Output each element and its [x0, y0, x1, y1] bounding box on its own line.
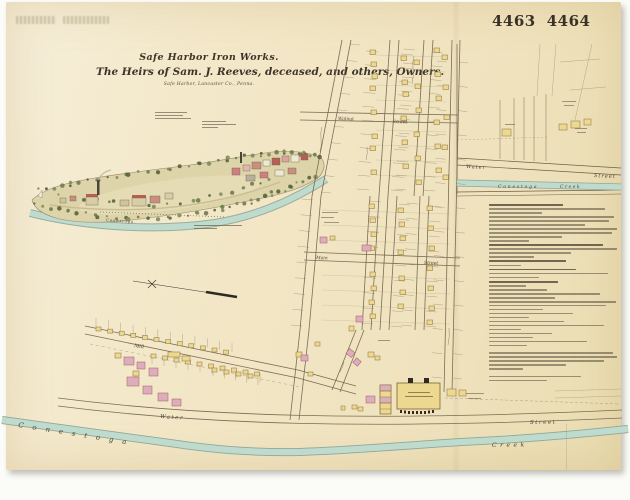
building [447, 389, 456, 396]
building-brick [172, 399, 181, 406]
pseudo-text-line [489, 289, 547, 290]
building [372, 74, 378, 79]
building [96, 327, 101, 331]
tree [168, 168, 171, 171]
parcel-line [361, 134, 373, 135]
building [416, 180, 422, 185]
building [502, 129, 511, 136]
building [370, 86, 376, 91]
pseudo-text-line [489, 248, 617, 249]
parcel-line [456, 208, 465, 209]
building [166, 340, 171, 344]
micro-text [466, 393, 484, 394]
micro-text [575, 128, 587, 129]
parcel-line [400, 68, 412, 69]
building [330, 236, 335, 240]
building-brick [137, 362, 145, 369]
building [131, 333, 136, 337]
building [108, 329, 113, 333]
tree [57, 193, 59, 195]
tree [57, 206, 62, 211]
building [434, 48, 440, 53]
parcel-line [456, 232, 465, 233]
building [209, 364, 214, 368]
building [427, 266, 433, 271]
building [415, 156, 421, 161]
building [174, 358, 179, 362]
building [401, 56, 407, 61]
building [414, 132, 420, 137]
pseudo-text-line [489, 265, 521, 266]
building [315, 342, 320, 346]
tree [198, 161, 202, 165]
tree [41, 205, 44, 208]
building [197, 362, 202, 366]
parcel-line [359, 161, 371, 162]
tree [147, 204, 150, 207]
tree [217, 159, 220, 162]
building [212, 368, 217, 372]
pseudo-text-line [489, 281, 558, 283]
tree [208, 194, 211, 197]
tree [242, 202, 246, 206]
tree [282, 149, 286, 153]
inset-label-street: Street [594, 173, 616, 180]
parcel-line [395, 265, 406, 266]
parcel-line [454, 305, 463, 306]
street-label-water: Water [160, 414, 184, 422]
parcel-line [428, 251, 439, 252]
building [232, 368, 237, 372]
block-line [322, 275, 450, 279]
building [255, 372, 260, 376]
pseudo-text-line [489, 352, 613, 353]
tree [152, 205, 156, 209]
building [435, 72, 441, 77]
mill-window-ticks [400, 410, 434, 414]
pseudo-text-line [489, 297, 555, 298]
building [400, 290, 406, 295]
building-brick [366, 396, 375, 403]
street-label-mill: Mill [133, 343, 145, 351]
tree [270, 190, 274, 194]
building [368, 352, 374, 357]
tree [243, 154, 246, 157]
parcel-line [426, 311, 437, 312]
tree [166, 202, 168, 204]
tree [220, 205, 224, 209]
tree [313, 153, 317, 157]
parcel-line [405, 249, 416, 250]
parcel-line [321, 192, 331, 193]
parcel-line [403, 279, 414, 280]
building-brick [301, 355, 308, 361]
pseudo-text-line [489, 325, 604, 326]
tree [251, 154, 255, 158]
building [427, 320, 433, 325]
parcel-line [350, 44, 360, 45]
tree [235, 157, 237, 159]
building [402, 80, 408, 85]
pseudo-text-line [489, 269, 576, 271]
parcel-line [434, 231, 444, 232]
parcel-line [404, 49, 415, 50]
pseudo-text-line [489, 333, 552, 334]
building-brick [124, 357, 134, 365]
pseudo-text-line [489, 380, 547, 381]
block-line [376, 175, 446, 177]
building [584, 119, 591, 125]
building [415, 84, 421, 89]
building [370, 314, 376, 319]
pseudo-text-line [489, 368, 523, 369]
parcel-line [324, 176, 334, 177]
factory-chimney [97, 180, 100, 195]
building [399, 276, 405, 281]
pseudo-text-line [489, 321, 564, 322]
building [459, 390, 466, 396]
birds-eye-illustration: Conestoga [30, 149, 326, 227]
parcel-line [397, 235, 408, 236]
building [436, 96, 442, 101]
building [142, 335, 147, 339]
street-label-walnut-street: Street [393, 119, 407, 125]
building [151, 354, 156, 358]
parcel-line [432, 353, 442, 354]
building [220, 366, 225, 370]
parcel-line [459, 86, 468, 87]
building [375, 356, 380, 360]
reference-legend [489, 204, 621, 384]
tree [146, 216, 150, 220]
building [559, 124, 567, 130]
inset-label-creek: Creek [560, 184, 581, 190]
tree [256, 198, 260, 202]
inset-label-conestoga: Conestoga [498, 184, 538, 190]
parcel-line [427, 135, 438, 136]
parcel-line [455, 256, 464, 257]
micro-text [577, 132, 586, 133]
tree [284, 190, 286, 192]
building [429, 246, 435, 251]
building [224, 350, 229, 354]
tree [74, 211, 78, 215]
pseudo-text-line [489, 216, 614, 217]
parcel-line [394, 149, 406, 150]
building [369, 204, 375, 209]
parcel-line [435, 158, 445, 159]
building [416, 108, 422, 113]
building [119, 331, 124, 335]
pseudo-text-line [489, 360, 604, 361]
building [352, 405, 357, 409]
tree [251, 202, 253, 204]
parcel-line [429, 107, 440, 108]
parcel-line [392, 176, 404, 177]
pseudo-text-line [489, 277, 539, 278]
pseudo-text-line [489, 260, 566, 262]
tree [156, 217, 160, 221]
parcel-line [453, 378, 462, 379]
parcel-line [402, 77, 413, 78]
pseudo-text-line [489, 224, 585, 225]
parcel-line [397, 161, 408, 162]
parcel-line [458, 111, 467, 112]
tree [188, 165, 190, 167]
tree [192, 199, 196, 203]
parcel-line [363, 92, 375, 93]
inset-faint-lines [457, 44, 606, 140]
building-brick [158, 393, 168, 401]
pseudo-text-line [489, 293, 600, 294]
parcel-line [400, 105, 411, 106]
micro-text [378, 340, 390, 341]
parcel-line [427, 281, 438, 282]
parcel-line [431, 66, 442, 67]
parcel-line [358, 175, 370, 176]
micro-text [468, 398, 481, 399]
parcel-line [424, 190, 435, 191]
building [248, 374, 253, 378]
micro-text [321, 217, 334, 218]
building [358, 407, 363, 411]
building [571, 121, 580, 128]
micro-text [322, 212, 338, 213]
parcel-line [426, 162, 437, 163]
tree [230, 191, 234, 195]
parcel-line [398, 147, 409, 148]
tree [274, 150, 279, 155]
micro-text [564, 105, 574, 106]
tree [52, 187, 56, 191]
building [429, 306, 435, 311]
building [370, 146, 376, 151]
building [224, 370, 229, 374]
tree [196, 211, 200, 215]
parcel-line [368, 216, 380, 217]
illustration-caption [194, 225, 246, 231]
building [398, 208, 404, 213]
tree [85, 211, 87, 213]
pseudo-text-line [194, 225, 242, 226]
building [399, 222, 405, 227]
building [133, 371, 139, 376]
parcel-line [402, 310, 413, 311]
tree [235, 202, 238, 205]
building [370, 50, 376, 55]
block-line [376, 130, 446, 132]
tree [204, 211, 209, 216]
tree [69, 181, 73, 185]
parcel-line [391, 326, 402, 327]
building [189, 344, 194, 348]
building [400, 236, 406, 241]
building [372, 134, 378, 139]
parcel-line [398, 219, 409, 220]
pseudo-text-line [489, 236, 562, 237]
tree [268, 178, 271, 181]
tree [196, 198, 201, 203]
tree [290, 150, 294, 154]
tree [69, 184, 72, 187]
building [427, 206, 433, 211]
tree [295, 181, 297, 183]
building [163, 356, 168, 360]
building-brick [149, 368, 158, 376]
pseudo-text-line [489, 305, 606, 306]
tree [108, 200, 111, 203]
tree [307, 176, 311, 180]
tree [137, 216, 140, 219]
pseudo-text-line [489, 356, 617, 357]
tree [242, 186, 245, 189]
pseudo-text-line [489, 364, 566, 365]
street-label-water-street: Street [530, 420, 556, 426]
building [436, 168, 442, 173]
tree [250, 198, 253, 201]
pseudo-text-line [489, 341, 587, 342]
iron-works-mill-plan [380, 378, 440, 414]
pseudo-text-line [489, 204, 563, 206]
tree [107, 176, 109, 178]
tree [115, 176, 118, 179]
inset-cross-streets [500, 94, 546, 161]
parcel-line [433, 328, 443, 329]
tree [288, 184, 292, 188]
tree [226, 155, 230, 159]
building [371, 170, 377, 175]
tree [37, 187, 39, 189]
pseudo-text-line [194, 228, 217, 229]
building-brick [127, 377, 139, 386]
building [371, 286, 377, 291]
tree [301, 180, 304, 183]
building [369, 300, 375, 305]
parcel-line [453, 354, 462, 355]
parcel-line [392, 311, 403, 312]
parcel-line [397, 108, 409, 109]
building [442, 55, 448, 60]
creek-label-creek: Creek [492, 441, 528, 449]
building-brick [143, 386, 152, 394]
pseudo-text-line [489, 309, 543, 310]
parcel-line [437, 61, 447, 62]
parcel-line [426, 296, 437, 297]
parcel-line [434, 280, 444, 281]
building-brick [353, 358, 361, 366]
tree [76, 181, 80, 185]
parcel-line [393, 163, 405, 164]
pseudo-text-line [489, 301, 616, 302]
building [403, 92, 409, 97]
building [402, 140, 408, 145]
micro-text [562, 101, 576, 102]
parcel-line [395, 136, 407, 137]
parcel-line [458, 135, 467, 136]
tree [276, 189, 280, 193]
parcel-line [337, 110, 347, 111]
parcel-line [406, 218, 417, 219]
tree [156, 170, 160, 174]
tree [137, 170, 140, 173]
tree [177, 213, 181, 217]
parcel-line [459, 62, 468, 63]
building [212, 348, 217, 352]
pseudo-text-line [489, 228, 617, 229]
parcel-line [391, 190, 403, 191]
parcel-line [455, 281, 464, 282]
tree [260, 155, 262, 157]
parcel-line [357, 189, 369, 190]
pseudo-text-line [489, 313, 573, 314]
block-line [376, 55, 446, 57]
block-line [322, 240, 450, 244]
tree [33, 202, 35, 204]
inset-label-water: Water [466, 164, 486, 171]
tree [228, 206, 230, 208]
building-brick [362, 245, 371, 251]
building [428, 226, 434, 231]
tree [267, 153, 271, 157]
building [443, 175, 449, 180]
building [428, 286, 434, 291]
parcel-line [401, 325, 412, 326]
tree [126, 172, 131, 177]
parcel-line [407, 203, 418, 204]
building [371, 232, 377, 237]
building [370, 218, 376, 223]
tree [263, 194, 268, 199]
tree [112, 199, 116, 203]
parcel-line [435, 183, 445, 184]
pseudo-text-line [489, 329, 521, 330]
building [236, 372, 241, 376]
tree [271, 194, 274, 197]
building [403, 164, 409, 169]
pseudo-text-line [489, 345, 527, 346]
tree [49, 207, 53, 211]
parcel-line [430, 93, 441, 94]
building [398, 304, 404, 309]
micro-text [324, 222, 339, 223]
parcel-line [436, 110, 446, 111]
building [435, 144, 441, 149]
parcel-line [434, 255, 444, 256]
parcel-line [331, 143, 341, 144]
pseudo-text-line [489, 376, 581, 377]
tree [60, 183, 65, 188]
tree [178, 164, 182, 168]
tree [260, 152, 263, 155]
tree [207, 161, 212, 166]
parcel-line [401, 54, 413, 55]
parcel-line [399, 133, 410, 134]
parcel-line [457, 159, 466, 160]
pseudo-text-line [489, 208, 605, 209]
tree [250, 182, 254, 186]
street-label-walnut: Walnut [338, 116, 354, 122]
parcel-line [399, 204, 410, 205]
building [442, 145, 448, 150]
street-label-main: Main [315, 255, 328, 261]
building [115, 353, 121, 358]
block-line [376, 100, 446, 102]
tree [82, 198, 86, 202]
building [200, 346, 205, 350]
building [168, 352, 180, 357]
parcel-line [327, 159, 337, 160]
parcel-line [369, 201, 381, 202]
